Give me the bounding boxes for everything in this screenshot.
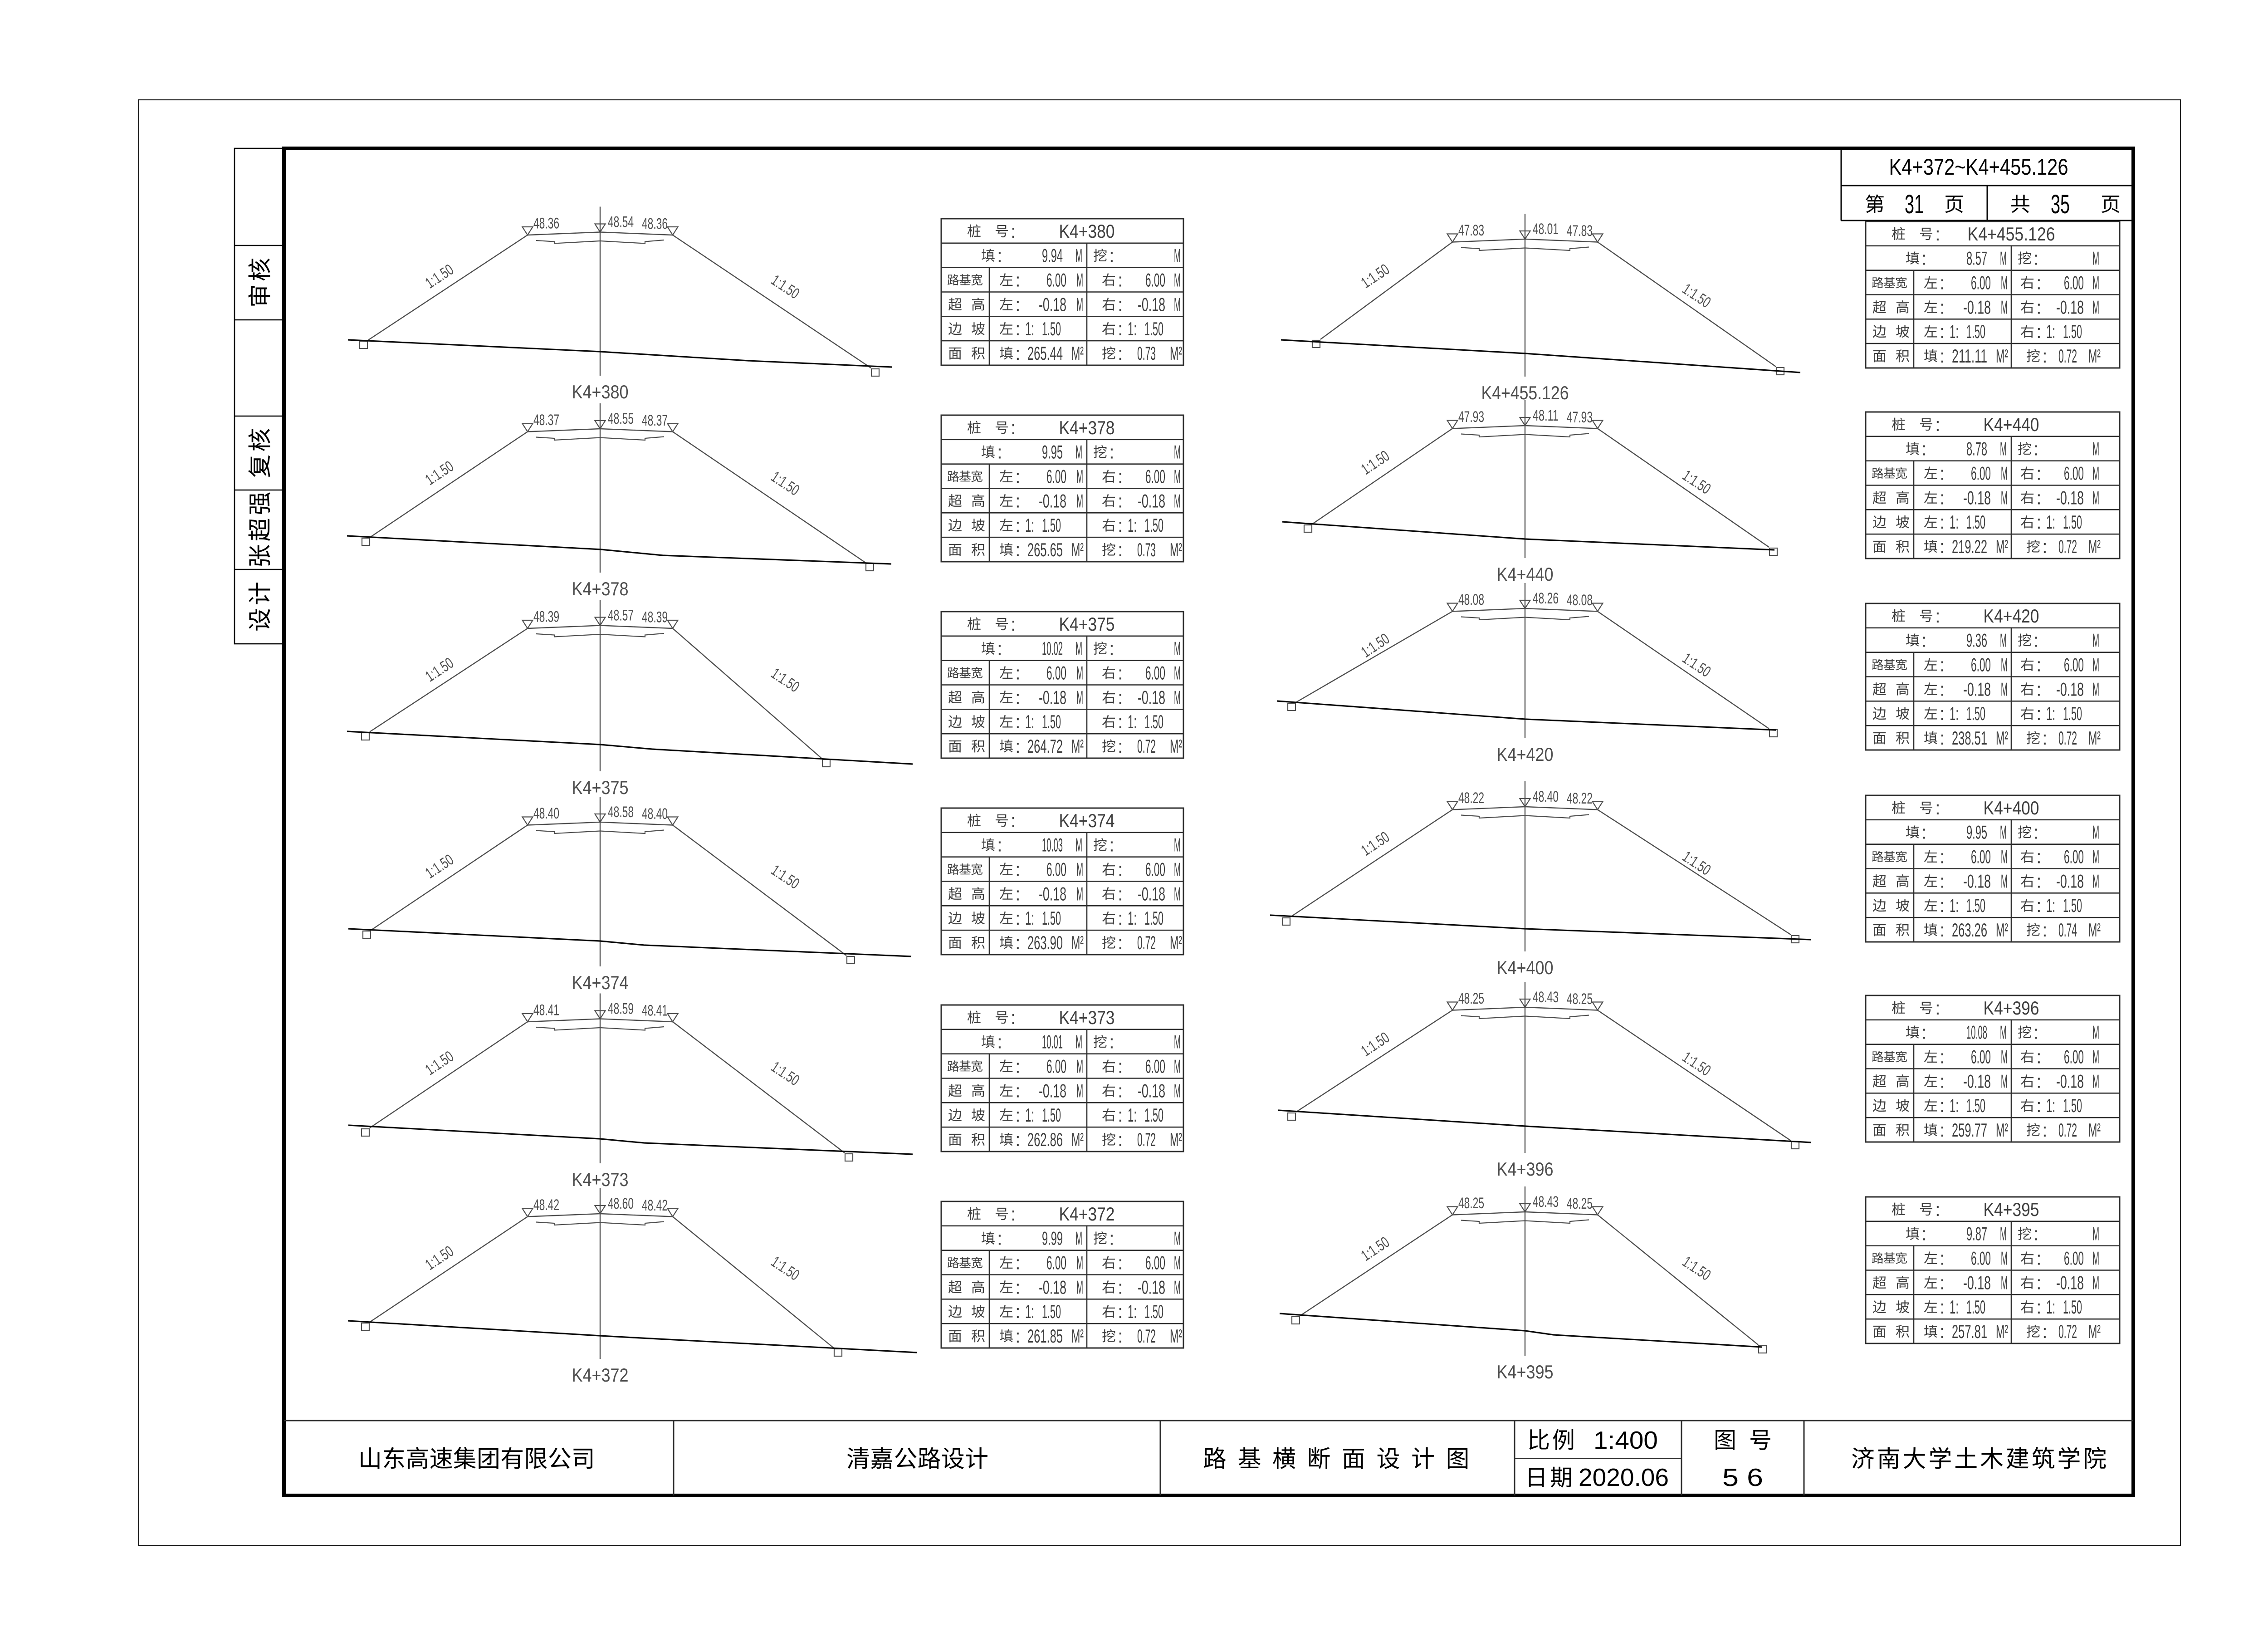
svg-text:48.59: 48.59 [608,1000,634,1018]
svg-text::: : [1015,1325,1021,1347]
svg-text:M: M [2001,1272,2008,1293]
svg-text::: : [1118,1056,1123,1077]
svg-text::: : [2036,511,2042,533]
svg-text::: : [1940,703,1945,724]
svg-text::: : [997,638,1002,659]
svg-text:8.78: 8.78 [1966,438,1987,460]
svg-text::: : [1935,605,1941,627]
svg-text::: : [1015,490,1021,511]
svg-text::: : [1015,686,1021,708]
svg-text:-0.18: -0.18 [1138,1080,1165,1101]
svg-text:M: M [1174,1228,1181,1249]
svg-text:6.00: 6.00 [1145,270,1165,291]
svg-text:0.72: 0.72 [2058,727,2077,749]
svg-text:M: M [1075,1031,1082,1053]
svg-text:0.72: 0.72 [1137,932,1156,953]
svg-text::: : [2033,248,2039,269]
svg-text:48.22: 48.22 [1567,790,1593,807]
svg-text::: : [2036,1272,2042,1293]
svg-text:9.99: 9.99 [1042,1228,1063,1249]
svg-text:M: M [1174,834,1181,856]
svg-text:-0.18: -0.18 [1138,883,1165,904]
svg-text:10.03: 10.03 [1042,834,1063,856]
svg-text::: : [1940,296,1945,318]
svg-text:M: M [1076,1080,1083,1101]
svg-text:M²: M² [2088,1119,2101,1141]
svg-text:1:: 1: [1128,907,1137,929]
svg-text:48.60: 48.60 [608,1195,634,1212]
svg-text:K4+380: K4+380 [1059,221,1115,242]
svg-text:1:: 1: [1950,1296,1959,1318]
svg-text:M: M [1174,662,1181,684]
svg-text::: : [1015,1129,1021,1150]
svg-text::: : [1015,1301,1021,1322]
svg-text::: : [1118,466,1123,487]
svg-text:48.40: 48.40 [1533,788,1559,805]
svg-text::: : [2036,1248,2042,1269]
svg-text:K4+455.126: K4+455.126 [1481,382,1569,403]
svg-text:M: M [2000,1022,2007,1043]
svg-text::: : [1109,245,1114,266]
svg-text:1.50: 1.50 [1042,711,1061,732]
svg-text:261.85: 261.85 [1027,1325,1063,1347]
svg-text:1.50: 1.50 [2063,1095,2082,1116]
svg-text:K4+396: K4+396 [1497,1158,1554,1180]
svg-text:M: M [1076,1056,1083,1077]
svg-text::: : [1118,907,1123,929]
svg-text:M: M [2001,678,2008,700]
svg-text:1:: 1: [1950,1095,1959,1116]
svg-text:1.50: 1.50 [2063,895,2082,916]
svg-text:M: M [1075,245,1082,266]
svg-text:M²: M² [2088,727,2101,749]
svg-text::: : [1015,735,1021,757]
svg-text:M²: M² [2088,919,2101,941]
svg-text:8.57: 8.57 [1966,248,1987,269]
svg-text::: : [2042,919,2048,941]
svg-text:M: M [2000,822,2007,843]
svg-text:M: M [2092,1070,2099,1092]
svg-text:1:: 1: [1025,318,1034,339]
svg-text::: : [1940,1296,1945,1318]
svg-text::: : [1015,1252,1021,1274]
svg-text:1.50: 1.50 [1042,1301,1061,1322]
svg-text:M: M [2092,272,2099,294]
svg-text:M: M [2092,463,2099,484]
svg-text:M: M [2000,438,2007,460]
svg-text::: : [2042,727,2048,749]
svg-text:6.00: 6.00 [2064,272,2084,294]
svg-text:47.93: 47.93 [1458,408,1484,426]
svg-text::: : [1118,735,1123,757]
svg-text:6.00: 6.00 [1145,859,1165,880]
svg-text:48.41: 48.41 [533,1002,559,1019]
svg-text:0.73: 0.73 [1137,343,1156,364]
svg-text::: : [1935,997,1941,1019]
svg-text::: : [2033,630,2039,651]
svg-text::: : [1940,463,1945,484]
svg-text:1.50: 1.50 [1042,1104,1061,1126]
svg-text:1:: 1: [1950,511,1959,533]
svg-text:-0.18: -0.18 [2056,1070,2084,1092]
svg-text::: : [1940,511,1945,533]
svg-text:K4+375: K4+375 [1059,613,1115,635]
svg-text::: : [1940,1046,1945,1068]
svg-text::: : [1011,810,1016,831]
svg-text:1:: 1: [1025,515,1034,536]
svg-text:262.86: 262.86 [1027,1129,1063,1150]
svg-text:257.81: 257.81 [1952,1321,1987,1342]
svg-text:K4+455.126: K4+455.126 [1968,223,2055,245]
svg-text:-0.18: -0.18 [2056,487,2084,508]
svg-text::: : [1015,466,1021,487]
svg-text:-0.18: -0.18 [2056,678,2084,700]
svg-text:0.72: 0.72 [2058,536,2077,557]
svg-text:6.00: 6.00 [2064,654,2084,676]
svg-text::: : [1118,1252,1123,1274]
svg-text::: : [1015,515,1021,536]
svg-text:M: M [1076,859,1083,880]
svg-text:6.00: 6.00 [1046,1252,1066,1274]
svg-text::: : [1109,441,1114,463]
svg-text::: : [1015,343,1021,364]
svg-text::: : [1921,822,1927,843]
svg-text:M: M [2001,296,2008,318]
svg-text:48.25: 48.25 [1567,990,1593,1008]
svg-text::: : [1921,1022,1927,1043]
svg-text:M: M [2092,296,2099,318]
svg-text:1:400: 1:400 [1593,1426,1658,1454]
svg-text:M: M [1174,441,1181,463]
svg-text:9.36: 9.36 [1966,630,1987,651]
svg-text:48.43: 48.43 [1533,989,1559,1006]
svg-text::: : [1011,221,1016,242]
svg-text:K4+395: K4+395 [1984,1199,2039,1220]
svg-text::: : [2036,870,2042,892]
svg-text:M²: M² [2088,536,2101,557]
svg-text:1:: 1: [2046,321,2055,342]
svg-text::: : [2036,296,2042,318]
svg-text::: : [1015,1080,1021,1101]
svg-text:10.02: 10.02 [1042,638,1063,659]
svg-text:M: M [1076,466,1083,487]
svg-text:48.25: 48.25 [1458,990,1484,1007]
svg-text::: : [1118,515,1123,536]
svg-text::: : [1118,662,1123,684]
svg-text:M: M [2001,870,2008,892]
svg-text:-0.18: -0.18 [1963,870,1991,892]
svg-text:1.50: 1.50 [1966,511,1985,533]
svg-text::: : [1940,536,1945,557]
svg-text::: : [1940,272,1945,294]
svg-text::: : [1940,654,1945,676]
svg-text:0.74: 0.74 [2058,919,2077,941]
svg-text:1.50: 1.50 [1042,515,1061,536]
svg-text:1.50: 1.50 [1042,318,1061,339]
svg-text:M²: M² [1996,919,2008,941]
svg-text:M: M [2000,1223,2007,1245]
svg-text:1.50: 1.50 [2063,321,2082,342]
svg-text:K4+372: K4+372 [572,1364,629,1386]
svg-text:M: M [2092,1248,2099,1269]
svg-text:48.01: 48.01 [1533,221,1559,238]
svg-text::: : [1118,859,1123,880]
svg-text::: : [1015,711,1021,732]
svg-text:1.50: 1.50 [1144,907,1163,929]
svg-text::: : [2036,463,2042,484]
svg-text:-0.18: -0.18 [1039,1276,1066,1298]
svg-text:K4+400: K4+400 [1984,797,2039,819]
svg-text:6.00: 6.00 [2064,1248,2084,1269]
svg-text::: : [1940,1070,1945,1092]
svg-text:48.36: 48.36 [533,215,559,232]
svg-text:K4+420: K4+420 [1497,744,1554,765]
svg-text:48.41: 48.41 [642,1002,668,1020]
svg-text::: : [1940,487,1945,508]
svg-text:48.25: 48.25 [1458,1195,1484,1212]
svg-text::: : [1940,846,1945,868]
svg-text:M²: M² [1071,735,1084,757]
svg-text:0.72: 0.72 [2058,1119,2077,1141]
svg-text:M: M [1174,1031,1181,1053]
svg-text:M: M [2001,487,2008,508]
svg-text:1:: 1: [1128,1301,1137,1322]
svg-text::: : [1015,1104,1021,1126]
svg-text:219.22: 219.22 [1952,536,1987,557]
svg-text:M: M [2001,272,2008,294]
svg-text:48.58: 48.58 [608,804,634,821]
svg-text::: : [2042,1119,2048,1141]
svg-text:M²: M² [1071,343,1084,364]
svg-text:M²: M² [1071,1325,1084,1347]
svg-text:6.00: 6.00 [1971,272,1991,294]
svg-text::: : [1011,1203,1016,1225]
svg-text:263.26: 263.26 [1952,919,1987,941]
svg-text::: : [1940,895,1945,916]
svg-text:M: M [1174,490,1181,511]
svg-text::: : [1011,417,1016,438]
svg-text:6.00: 6.00 [1145,1056,1165,1077]
svg-text::: : [1118,1325,1123,1347]
svg-text:M²: M² [1996,536,2008,557]
svg-text:1:: 1: [1128,711,1137,732]
svg-text:1.50: 1.50 [1144,1301,1163,1322]
svg-text:M²: M² [1170,539,1182,560]
svg-text:M: M [1174,859,1181,880]
svg-text:1.50: 1.50 [1144,515,1163,536]
svg-text:6.00: 6.00 [1971,654,1991,676]
svg-text::: : [1935,414,1941,435]
svg-text::: : [1118,343,1123,364]
svg-text:K4+373: K4+373 [1059,1007,1115,1028]
svg-text:1.50: 1.50 [1966,895,1985,916]
svg-text:1.50: 1.50 [1042,907,1061,929]
svg-text:M: M [1174,638,1181,659]
svg-text::: : [1118,1301,1123,1322]
svg-text:K4+380: K4+380 [572,381,629,402]
svg-text::: : [2036,1070,2042,1092]
svg-text:M: M [1076,662,1083,684]
svg-text::: : [2036,846,2042,868]
svg-text:-0.18: -0.18 [1963,678,1991,700]
svg-text:M²: M² [1170,1325,1182,1347]
svg-text::: : [1109,1031,1114,1053]
svg-text:2020.06: 2020.06 [1579,1463,1669,1491]
svg-text::: : [2036,895,2042,916]
svg-text:48.42: 48.42 [533,1196,559,1214]
svg-text:48.40: 48.40 [533,805,559,822]
svg-text:48.36: 48.36 [642,216,668,233]
svg-text::: : [1011,1007,1016,1028]
svg-text:M: M [1076,490,1083,511]
svg-text::: : [1118,270,1123,291]
svg-text:0.72: 0.72 [1137,735,1156,757]
svg-text:M: M [1075,834,1082,856]
svg-text:48.43: 48.43 [1533,1193,1559,1211]
svg-text:M²: M² [1071,932,1084,953]
svg-text:48.26: 48.26 [1533,590,1559,607]
svg-text::: : [1015,662,1021,684]
svg-text::: : [1940,1248,1945,1269]
svg-text::: : [1015,859,1021,880]
svg-text:48.37: 48.37 [642,412,668,429]
svg-text::: : [2033,1022,2039,1043]
svg-text:1.50: 1.50 [1144,318,1163,339]
svg-text:263.90: 263.90 [1027,932,1063,953]
svg-text::: : [2036,678,2042,700]
svg-text:M: M [2092,678,2099,700]
svg-text:M: M [1174,294,1181,315]
svg-text:259.77: 259.77 [1952,1119,1987,1141]
svg-text::: : [1921,1223,1927,1245]
svg-text:10.01: 10.01 [1042,1031,1063,1053]
svg-text:-0.18: -0.18 [1963,296,1991,318]
svg-text:6.00: 6.00 [1145,1252,1165,1274]
svg-text:M: M [2001,1070,2008,1092]
svg-text::: : [997,441,1002,463]
svg-text::: : [2036,487,2042,508]
svg-text:K4+395: K4+395 [1497,1361,1554,1382]
svg-text:6.00: 6.00 [2064,463,2084,484]
svg-text:1:: 1: [1025,711,1034,732]
svg-text:M²: M² [1170,735,1182,757]
svg-text:M²: M² [1170,932,1182,953]
svg-text:9.94: 9.94 [1042,245,1063,266]
svg-text:0.72: 0.72 [2058,345,2077,367]
svg-text:-0.18: -0.18 [1039,490,1066,511]
svg-text::: : [1118,1129,1123,1150]
svg-text::: : [1015,270,1021,291]
svg-text:M: M [1174,270,1181,291]
svg-text::: : [1940,1119,1945,1141]
svg-text:1:: 1: [1025,907,1034,929]
svg-text:48.08: 48.08 [1458,591,1484,608]
svg-text:31: 31 [1905,190,1924,219]
svg-text:9.87: 9.87 [1966,1223,1987,1245]
svg-text::: : [1935,223,1941,245]
svg-text::: : [997,245,1002,266]
svg-text::: : [2036,1296,2042,1318]
svg-text:1:: 1: [1128,318,1137,339]
svg-text::: : [1011,613,1016,635]
svg-text:0.72: 0.72 [1137,1325,1156,1347]
svg-text::: : [1118,711,1123,732]
svg-text:6.00: 6.00 [1145,662,1165,684]
svg-text:-0.18: -0.18 [1039,686,1066,708]
svg-text:M²: M² [1071,1129,1084,1150]
svg-text:6.00: 6.00 [1046,1056,1066,1077]
svg-text::: : [1118,539,1123,560]
svg-text::: : [1118,883,1123,904]
svg-text:M²: M² [2088,1321,2101,1342]
svg-text:M: M [1076,1276,1083,1298]
svg-text:48.54: 48.54 [608,214,634,231]
svg-text:M: M [1174,1252,1181,1274]
svg-text:K4+420: K4+420 [1984,605,2039,627]
svg-text:1:: 1: [1025,1301,1034,1322]
svg-text:M: M [1075,638,1082,659]
svg-text:M: M [1174,1056,1181,1077]
svg-text::: : [997,1031,1002,1053]
svg-text:-0.18: -0.18 [1138,294,1165,315]
svg-text:265.44: 265.44 [1027,343,1063,364]
svg-text:M: M [1076,686,1083,708]
svg-text:M: M [2001,654,2008,676]
svg-text:48.39: 48.39 [533,608,559,626]
svg-text:-0.18: -0.18 [1039,1080,1066,1101]
svg-text:M²: M² [1071,539,1084,560]
svg-text:M²: M² [1170,1129,1182,1150]
svg-text::: : [2033,438,2039,460]
svg-text:6.00: 6.00 [2064,846,2084,868]
svg-text:K4+372~K4+455.126: K4+372~K4+455.126 [1889,154,2068,180]
svg-text:1:: 1: [1950,321,1959,342]
svg-text:K4+374: K4+374 [572,972,629,993]
svg-text:48.55: 48.55 [608,410,634,427]
svg-text:M: M [2000,248,2007,269]
svg-text:M: M [1076,1252,1083,1274]
svg-text::: : [1109,638,1114,659]
svg-text:K4+372: K4+372 [1059,1203,1115,1225]
svg-text:1.50: 1.50 [1966,703,1985,724]
svg-text:1:: 1: [1950,895,1959,916]
svg-text::: : [1940,870,1945,892]
svg-text:48.57: 48.57 [608,607,634,624]
svg-text:M: M [2092,870,2099,892]
svg-text::: : [1940,678,1945,700]
svg-text:1:: 1: [1025,1104,1034,1126]
svg-text:48.22: 48.22 [1458,789,1484,807]
svg-text:47.83: 47.83 [1567,222,1593,240]
svg-text:0.72: 0.72 [1137,1129,1156,1150]
svg-text:9.95: 9.95 [1042,441,1063,463]
svg-text:M: M [2092,438,2099,460]
svg-text:M²: M² [1996,1119,2008,1141]
svg-text:5 6: 5 6 [1722,1463,1763,1491]
svg-text::: : [2036,272,2042,294]
svg-text:M: M [1174,883,1181,904]
svg-text:0.73: 0.73 [1137,539,1156,560]
svg-text:K4+400: K4+400 [1497,957,1554,978]
svg-text::: : [1015,907,1021,929]
svg-text:9.95: 9.95 [1966,822,1987,843]
svg-text:M: M [2092,1223,2099,1245]
svg-text::: : [2036,1095,2042,1116]
svg-text:1:: 1: [1128,515,1137,536]
svg-text::: : [1109,834,1114,856]
svg-text:1:: 1: [2046,1095,2055,1116]
svg-text:48.40: 48.40 [642,805,668,823]
